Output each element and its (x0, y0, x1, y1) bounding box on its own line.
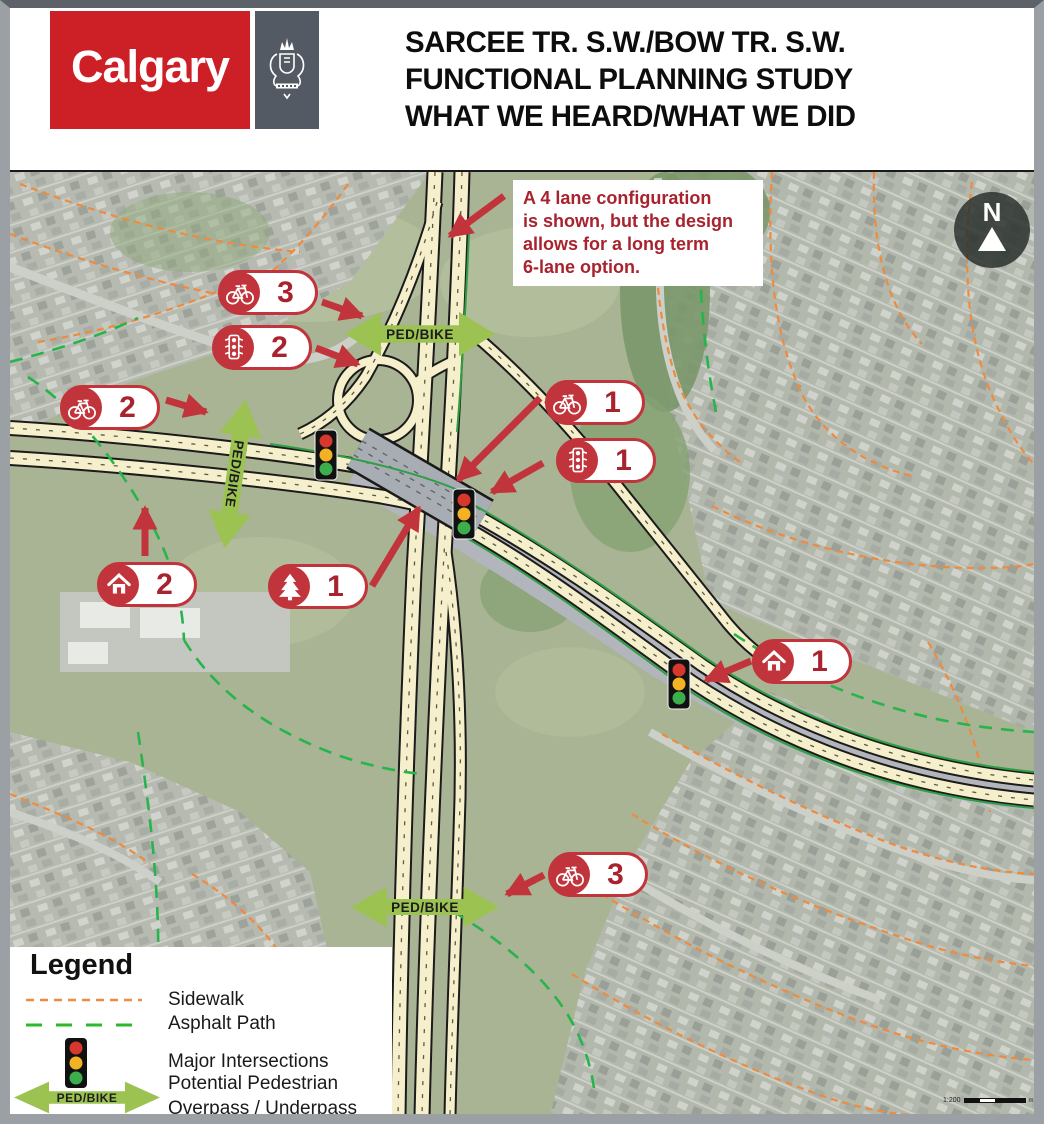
marker-pill-bike: 3 (548, 852, 648, 897)
marker-count: 1 (794, 645, 849, 679)
legend-item-major-intersections: Major Intersections (168, 1051, 329, 1073)
calgary-logo-text: Calgary (50, 41, 250, 93)
traffic-signal-icon (315, 430, 337, 480)
north-arrow-icon (978, 227, 1006, 251)
legend: Legend Sidewalk Asphalt Path Major Inter… (10, 947, 392, 1114)
north-label: N (954, 197, 1030, 227)
planning-map: PED/BIKE PED/BIKE PED/BIKE 3 (10, 170, 1034, 1114)
tree-icon (269, 566, 310, 607)
ped-bike-label: PED/BIKE (391, 900, 459, 915)
marker-pill-bike: 1 (545, 380, 645, 425)
home-icon (753, 641, 794, 682)
calgary-crest-icon (264, 28, 310, 112)
marker-pill-tree: 1 (268, 564, 368, 609)
marker-count: 3 (260, 276, 315, 310)
legend-item-asphalt-path: Asphalt Path (168, 1013, 276, 1035)
legend-item-sidewalk: Sidewalk (168, 989, 244, 1011)
legend-title: Legend (30, 949, 133, 982)
bike-icon (219, 272, 260, 313)
bike-icon (546, 382, 587, 423)
traffic-signal-icon (453, 489, 475, 539)
marker-count: 1 (587, 386, 642, 420)
calgary-crest-box (255, 11, 319, 129)
marker-pill-bike: 2 (60, 385, 160, 430)
traffic-signal-icon (668, 659, 690, 709)
calgary-logo: Calgary (50, 11, 250, 129)
scale-bar-segments (964, 1098, 1026, 1103)
marker-pill-home: 2 (97, 562, 197, 607)
sidewalk-line-sample (26, 997, 142, 1003)
bike-icon (61, 387, 102, 428)
marker-pill-signal: 2 (212, 325, 312, 370)
ped-bike-label: PED/BIKE (386, 327, 454, 342)
traffic-signal-icon (213, 327, 254, 368)
bike-icon (549, 854, 590, 895)
marker-count: 1 (310, 570, 365, 604)
marker-pill-home: 1 (752, 639, 852, 684)
home-icon (98, 564, 139, 605)
traffic-signal-icon (62, 1037, 90, 1089)
traffic-signal-icon (557, 440, 598, 481)
scale-bar: 1:200 m (943, 1097, 1034, 1104)
header: Calgary SARCEE TR. S.W./BOW TR. S.W. FUN… (10, 8, 1034, 170)
design-callout: A 4 lane configuration is shown, but the… (513, 180, 763, 286)
marker-count: 1 (598, 444, 653, 478)
legend-item-ped-overpass: Potential Pedestrian Overpass / Underpas… (168, 1071, 357, 1114)
poster-page: Calgary SARCEE TR. S.W./BOW TR. S.W. FUN… (0, 0, 1044, 1124)
marker-count: 2 (139, 568, 194, 602)
marker-count: 2 (102, 391, 157, 425)
marker-pill-bike: 3 (218, 270, 318, 315)
scale-ratio: 1:200 (943, 1097, 961, 1104)
scale-unit: m (1029, 1098, 1034, 1104)
asphalt-path-line-sample (26, 1021, 142, 1029)
marker-count: 2 (254, 331, 309, 365)
marker-pill-signal: 1 (556, 438, 656, 483)
north-arrow: N (954, 192, 1030, 268)
ped-bike-label: PED/BIKE (57, 1091, 118, 1105)
page-title: SARCEE TR. S.W./BOW TR. S.W. FUNCTIONAL … (405, 24, 855, 135)
marker-count: 3 (590, 858, 645, 892)
